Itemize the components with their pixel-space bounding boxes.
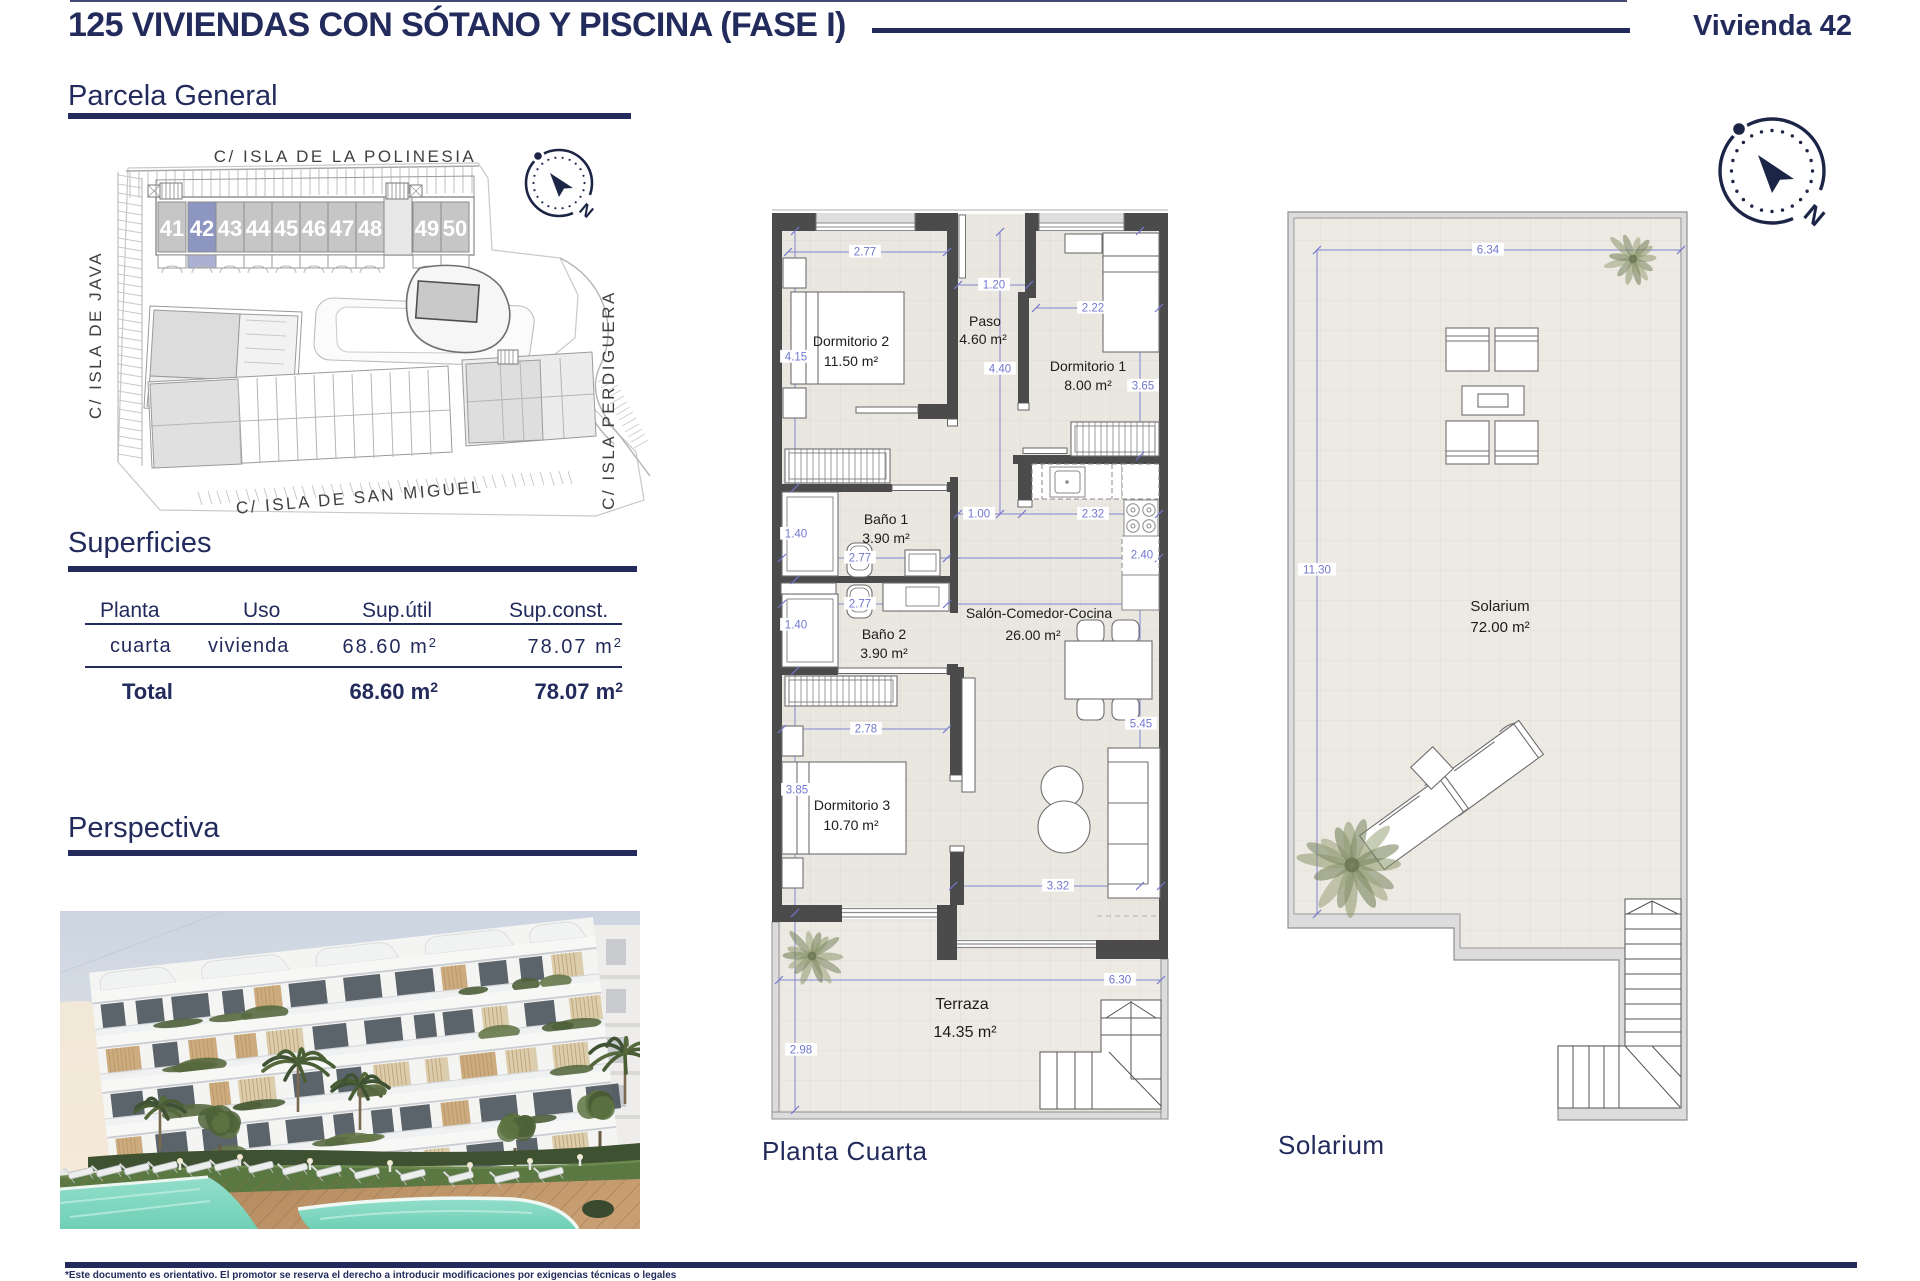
- svg-text:Solarium: Solarium: [1470, 598, 1529, 615]
- svg-text:Terraza: Terraza: [935, 996, 988, 1013]
- svg-text:6.30: 6.30: [1109, 975, 1131, 987]
- svg-text:5.45: 5.45: [1130, 719, 1152, 731]
- svg-text:48: 48: [358, 216, 382, 241]
- svg-text:11.50 m²: 11.50 m²: [824, 353, 879, 369]
- svg-text:4.40: 4.40: [989, 364, 1011, 376]
- svg-text:46: 46: [302, 216, 326, 241]
- svg-text:2.77: 2.77: [854, 247, 876, 259]
- svg-text:C/ ISLA DE SAN MIGUEL: C/ ISLA DE SAN MIGUEL: [235, 477, 484, 518]
- svg-text:C/ ISLA DE JAVA: C/ ISLA DE JAVA: [86, 251, 105, 419]
- svg-text:50: 50: [443, 216, 467, 241]
- svg-text:43: 43: [218, 216, 242, 241]
- svg-text:2.77: 2.77: [849, 553, 871, 565]
- svg-text:2.22: 2.22: [1082, 303, 1104, 315]
- svg-text:1.40: 1.40: [785, 620, 807, 632]
- svg-text:45: 45: [274, 216, 298, 241]
- svg-text:3.32: 3.32: [1047, 881, 1069, 893]
- svg-text:Baño 2: Baño 2: [862, 626, 907, 642]
- svg-text:3.90 m²: 3.90 m²: [862, 530, 910, 546]
- svg-text:Dormitorio 1: Dormitorio 1: [1050, 358, 1126, 374]
- svg-text:47: 47: [330, 216, 354, 241]
- svg-text:Paso: Paso: [969, 313, 1001, 329]
- svg-text:Salón-Comedor-Cocina: Salón-Comedor-Cocina: [966, 605, 1113, 621]
- svg-text:2.32: 2.32: [1082, 509, 1104, 521]
- svg-text:49: 49: [415, 216, 439, 241]
- svg-text:Dormitorio 2: Dormitorio 2: [813, 333, 889, 349]
- svg-text:C/ ISLA DE LA POLINESIA: C/ ISLA DE LA POLINESIA: [214, 147, 477, 166]
- svg-text:72.00 m²: 72.00 m²: [1470, 619, 1529, 636]
- svg-text:1.00: 1.00: [968, 509, 990, 521]
- svg-text:1.20: 1.20: [983, 280, 1005, 292]
- svg-text:3.90 m²: 3.90 m²: [860, 645, 908, 661]
- svg-text:2.77: 2.77: [849, 599, 871, 611]
- svg-text:42: 42: [190, 216, 214, 241]
- svg-text:N: N: [575, 200, 597, 222]
- svg-text:6.34: 6.34: [1477, 245, 1500, 257]
- svg-text:14.35 m²: 14.35 m²: [933, 1024, 997, 1041]
- svg-text:Dormitorio 3: Dormitorio 3: [814, 797, 890, 813]
- svg-text:N: N: [1798, 199, 1830, 232]
- svg-text:Baño 1: Baño 1: [864, 511, 909, 527]
- svg-text:44: 44: [246, 216, 271, 241]
- svg-text:C/ ISLA PERDIGUERA: C/ ISLA PERDIGUERA: [599, 290, 618, 510]
- svg-text:10.70 m²: 10.70 m²: [823, 817, 879, 833]
- svg-text:8.00 m²: 8.00 m²: [1064, 377, 1112, 393]
- svg-text:1.40: 1.40: [785, 529, 807, 541]
- svg-text:4.60 m²: 4.60 m²: [959, 331, 1007, 347]
- svg-text:3.65: 3.65: [1132, 381, 1154, 393]
- svg-text:4.15: 4.15: [785, 352, 807, 364]
- svg-text:2.78: 2.78: [855, 724, 877, 736]
- svg-text:41: 41: [160, 216, 184, 241]
- svg-text:26.00 m²: 26.00 m²: [1005, 627, 1061, 643]
- svg-text:11.30: 11.30: [1303, 565, 1331, 577]
- svg-text:3.85: 3.85: [786, 785, 808, 797]
- svg-text:2.98: 2.98: [790, 1045, 812, 1057]
- svg-text:2.40: 2.40: [1131, 550, 1153, 562]
